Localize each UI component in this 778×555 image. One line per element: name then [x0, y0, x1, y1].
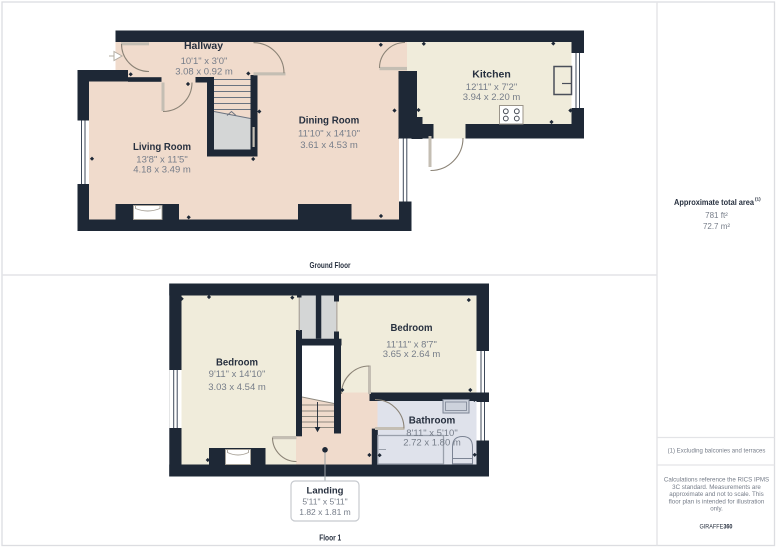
svg-text:Approximate total area: Approximate total area [674, 198, 754, 207]
svg-text:4.18 x 3.49 m: 4.18 x 3.49 m [133, 164, 191, 175]
svg-text:11'10" x 14'10": 11'10" x 14'10" [298, 128, 360, 139]
svg-text:3.61 x 4.53 m: 3.61 x 4.53 m [300, 140, 358, 151]
svg-text:(1) Excluding balconies and te: (1) Excluding balconies and terraces [668, 449, 766, 455]
svg-text:1.82 x 1.81 m: 1.82 x 1.81 m [299, 507, 351, 517]
svg-text:Landing: Landing [307, 486, 344, 497]
svg-text:72.7 m²: 72.7 m² [703, 222, 730, 231]
svg-text:9'11" x 14'10": 9'11" x 14'10" [209, 369, 266, 380]
svg-text:Floor 1: Floor 1 [319, 533, 341, 543]
svg-text:Ground Floor: Ground Floor [310, 260, 352, 270]
svg-text:Hallway: Hallway [184, 40, 223, 52]
svg-text:only.: only. [710, 506, 723, 513]
svg-text:Dining Room: Dining Room [299, 115, 360, 127]
svg-text:Bedroom: Bedroom [391, 322, 433, 334]
svg-text:781 ft²: 781 ft² [705, 211, 728, 220]
svg-text:Bathroom: Bathroom [409, 415, 456, 427]
svg-text:Kitchen: Kitchen [472, 69, 511, 81]
svg-text:Living Room: Living Room [133, 141, 191, 153]
svg-text:3.03 x 4.54 m: 3.03 x 4.54 m [208, 382, 266, 393]
svg-text:3.65 x 2.64 m: 3.65 x 2.64 m [383, 349, 441, 360]
svg-text:(1): (1) [755, 197, 761, 202]
svg-text:3.08 x 0.92 m: 3.08 x 0.92 m [175, 66, 233, 77]
svg-text:12'11" x 7'2": 12'11" x 7'2" [466, 82, 517, 93]
svg-text:5'11" x 5'11": 5'11" x 5'11" [302, 497, 347, 507]
svg-text:GIRAFFE360: GIRAFFE360 [700, 524, 733, 531]
svg-text:3.94 x 2.20 m: 3.94 x 2.20 m [463, 92, 521, 103]
svg-text:3C standard. Measurements are: 3C standard. Measurements are [672, 484, 761, 491]
svg-text:approximate and not to scale.: approximate and not to scale. This [669, 491, 763, 498]
svg-text:Calculations reference the RIC: Calculations reference the RICS IPMS [664, 477, 769, 484]
svg-text:2.72 x 1.80 m: 2.72 x 1.80 m [403, 438, 461, 449]
svg-text:Bedroom: Bedroom [216, 357, 258, 369]
svg-text:floor plan is intended for ill: floor plan is intended for illustration [669, 498, 765, 505]
